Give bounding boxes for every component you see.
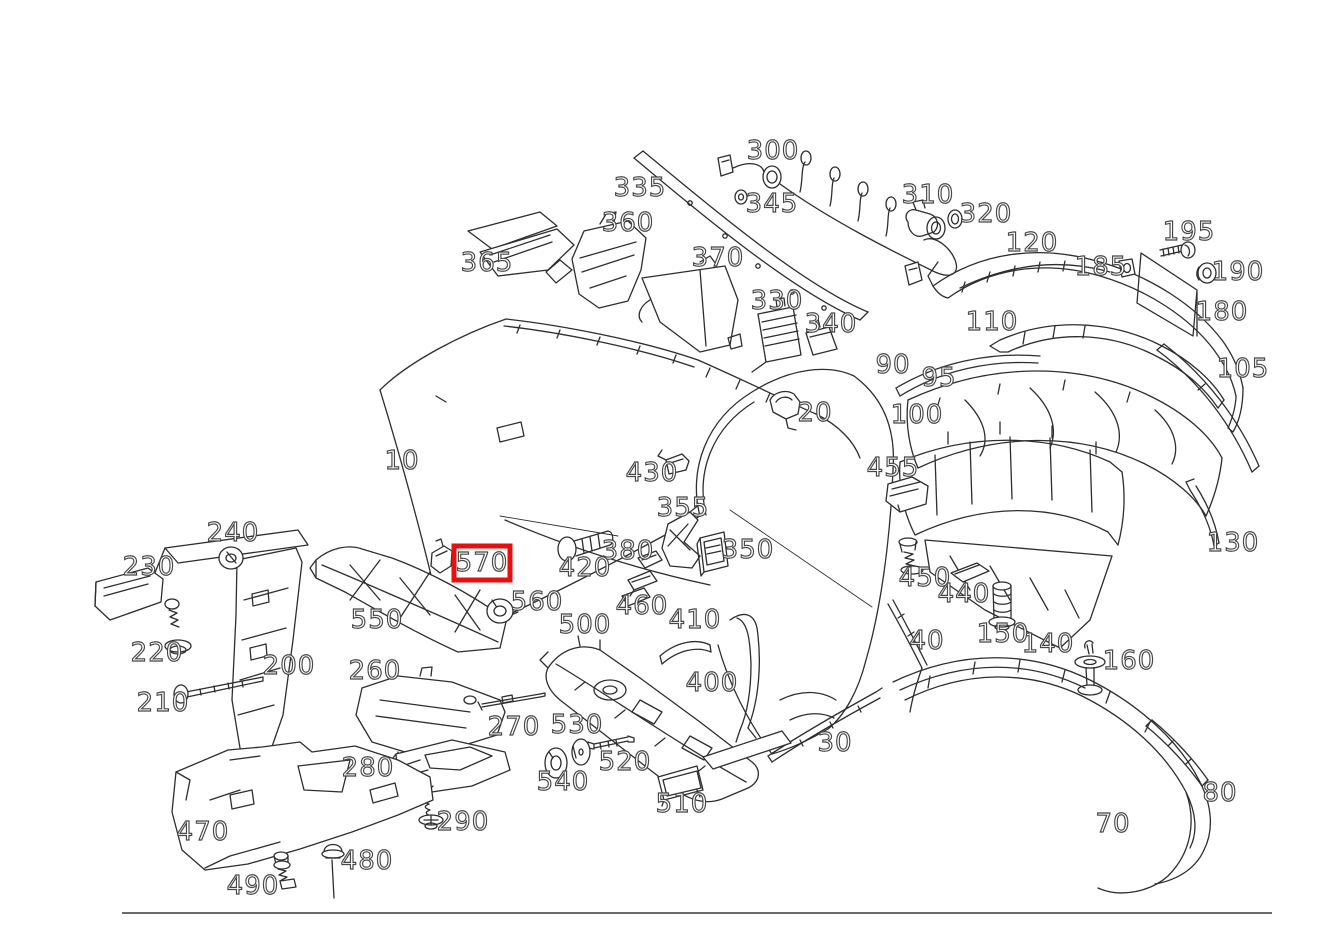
part-label-130[interactable]: 130 [1207,528,1260,558]
part-label-20[interactable]: 20 [797,398,832,428]
part-label-40[interactable]: 40 [909,626,944,656]
part-label-470[interactable]: 470 [177,817,230,847]
part-label-95[interactable]: 95 [921,363,956,393]
part-410-arc-drawing [660,642,711,664]
part-90-strip-drawing [896,355,1040,396]
part-label-530[interactable]: 530 [551,710,604,740]
part-label-10[interactable]: 10 [384,446,419,476]
part-label-360[interactable]: 360 [602,208,655,238]
part-160-rivet-drawing [1075,641,1105,695]
part-label-410[interactable]: 410 [669,605,722,635]
part-label-570[interactable]: 570 [456,548,509,578]
part-label-460[interactable]: 460 [616,591,669,621]
part-label-70[interactable]: 70 [1095,809,1130,839]
part-label-490[interactable]: 490 [227,871,280,901]
part-label-365[interactable]: 365 [461,248,514,278]
part-label-510[interactable]: 510 [656,789,709,819]
part-label-100[interactable]: 100 [891,400,944,430]
part-label-420[interactable]: 420 [559,553,612,583]
part-label-370[interactable]: 370 [692,243,745,273]
part-label-110[interactable]: 110 [966,307,1019,337]
part-label-120[interactable]: 120 [1006,228,1059,258]
part-label-345[interactable]: 345 [746,189,799,219]
part-label-480[interactable]: 480 [341,846,394,876]
part-label-350[interactable]: 350 [722,535,775,565]
part-570-clip-drawing [431,539,452,573]
part-label-280[interactable]: 280 [342,753,395,783]
part-label-550[interactable]: 550 [351,605,404,635]
diagram-stage: 1020304070809095100105110120130140150160… [0,0,1326,937]
part-label-90[interactable]: 90 [875,350,910,380]
part-530-disc-drawing [572,739,590,765]
part-240-grommet-drawing [219,547,243,569]
part-label-455[interactable]: 455 [867,453,920,483]
part-140-reinforcement-drawing [900,422,1124,648]
part-label-190[interactable]: 190 [1212,257,1265,287]
part-label-160[interactable]: 160 [1103,646,1156,676]
part-label-450[interactable]: 450 [899,563,952,593]
part-label-185[interactable]: 185 [1075,252,1128,282]
part-label-150[interactable]: 150 [977,619,1030,649]
part-label-560[interactable]: 560 [511,587,564,617]
part-label-140[interactable]: 140 [1022,629,1075,659]
part-label-180[interactable]: 180 [1196,297,1249,327]
part-20-clip-drawing [770,392,800,430]
part-label-300[interactable]: 300 [747,136,800,166]
part-label-310[interactable]: 310 [902,180,955,210]
part-label-520[interactable]: 520 [599,747,652,777]
part-label-80[interactable]: 80 [1202,778,1237,808]
part-label-430[interactable]: 430 [626,458,679,488]
part-560-grommet-drawing [487,599,513,623]
part-label-270[interactable]: 270 [488,712,541,742]
part-label-210[interactable]: 210 [137,688,190,718]
part-label-540[interactable]: 540 [537,767,590,797]
part-40-strip-drawing [888,600,927,712]
part-label-220[interactable]: 220 [131,638,184,668]
exploded-view-drawing: 1020304070809095100105110120130140150160… [0,0,1326,937]
part-label-330[interactable]: 330 [751,286,804,316]
part-label-195[interactable]: 195 [1163,217,1216,247]
part-label-320[interactable]: 320 [960,199,1013,229]
part-110-trim-drawing [990,325,1224,408]
part-label-500[interactable]: 500 [559,610,612,640]
part-label-240[interactable]: 240 [207,518,260,548]
part-label-400[interactable]: 400 [686,668,739,698]
part-label-355[interactable]: 355 [657,493,710,523]
part-70-lower-trim-drawing [893,658,1210,893]
part-label-200[interactable]: 200 [263,651,316,681]
part-label-105[interactable]: 105 [1217,354,1270,384]
part-label-230[interactable]: 230 [123,552,176,582]
part-label-290[interactable]: 290 [437,807,490,837]
part-label-340[interactable]: 340 [805,309,858,339]
part-label-260[interactable]: 260 [349,656,402,686]
part-label-335[interactable]: 335 [614,173,667,203]
part-label-30[interactable]: 30 [817,728,852,758]
